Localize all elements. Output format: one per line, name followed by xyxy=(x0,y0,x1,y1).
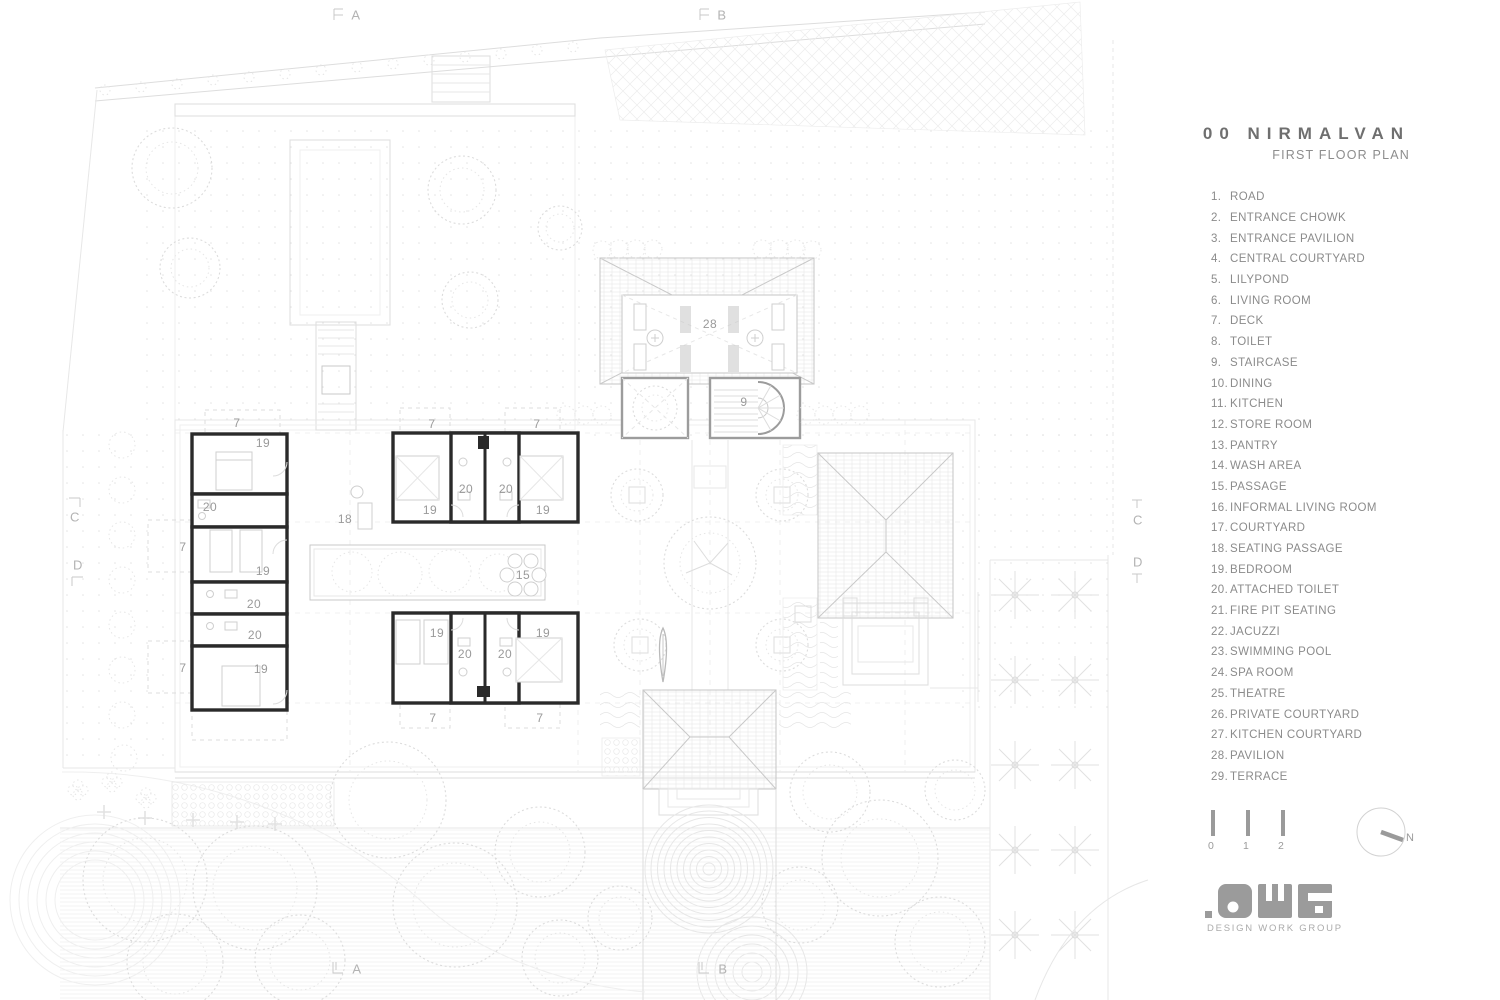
legend-item: 7.DECK xyxy=(1211,311,1377,332)
legend-item-number: 23. xyxy=(1211,646,1230,658)
section-marker-label: C xyxy=(1133,513,1143,528)
logo-caption: DESIGN WORK GROUP xyxy=(1207,923,1343,934)
legend-item-label: TOILET xyxy=(1230,336,1272,348)
legend-item: 12.STORE ROOM xyxy=(1211,415,1377,436)
legend-item: 22.JACUZZI xyxy=(1211,621,1377,642)
legend-item-label: ATTACHED TOILET xyxy=(1230,584,1339,596)
legend-item-label: KITCHEN xyxy=(1230,398,1283,410)
central-courtyard xyxy=(611,440,808,690)
section-marker-label: D xyxy=(1133,555,1143,570)
legend-item-number: 19. xyxy=(1211,564,1230,576)
ornamental-paving xyxy=(68,772,334,831)
room-number-label: 7 xyxy=(536,711,543,725)
legend-item: 13.PANTRY xyxy=(1211,435,1377,456)
legend-item-label: SPA ROOM xyxy=(1230,667,1294,679)
legend-item: 18.SEATING PASSAGE xyxy=(1211,539,1377,560)
legend-item-number: 16. xyxy=(1211,502,1230,514)
legend-item-label: INFORMAL LIVING ROOM xyxy=(1230,502,1377,514)
section-marker-label: B xyxy=(717,8,726,23)
lawn-stripe-texture xyxy=(60,828,990,1000)
legend-item-label: SEATING PASSAGE xyxy=(1230,543,1343,555)
scale-tick-label: 2 xyxy=(1278,840,1284,852)
legend-item: 9.STAIRCASE xyxy=(1211,353,1377,374)
legend-item-label: ENTRANCE CHOWK xyxy=(1230,212,1346,224)
section-marker-label: D xyxy=(73,558,83,573)
legend-item: 1.ROAD xyxy=(1211,187,1377,208)
room-number-label: 19 xyxy=(536,626,550,640)
legend-item-label: PASSAGE xyxy=(1230,481,1287,493)
legend-item-label: ENTRANCE PAVILION xyxy=(1230,233,1355,245)
legend-item: 15.PASSAGE xyxy=(1211,477,1377,498)
legend-item-label: SWIMMING POOL xyxy=(1230,646,1332,658)
room-number-label: 20 xyxy=(247,597,261,611)
room-number-label: 20 xyxy=(499,482,513,496)
drawing-title: 00 NIRMALVAN xyxy=(1203,124,1410,144)
legend-item: 14.WASH AREA xyxy=(1211,456,1377,477)
legend-item: 11.KITCHEN xyxy=(1211,394,1377,415)
legend-item: 5.LILYPOND xyxy=(1211,270,1377,291)
legend-item-label: LIVING ROOM xyxy=(1230,295,1311,307)
legend-item-label: CENTRAL COURTYARD xyxy=(1230,253,1365,265)
legend-item-number: 4. xyxy=(1211,253,1230,265)
north-arrow-icon xyxy=(1354,805,1414,865)
legend-item-number: 13. xyxy=(1211,440,1230,452)
section-marker-label: A xyxy=(351,8,360,23)
scale-tick: 2 xyxy=(1281,810,1311,836)
legend-item-number: 17. xyxy=(1211,522,1230,534)
section-marker-label: B xyxy=(718,962,727,977)
scale-tick: 0 xyxy=(1211,810,1241,836)
legend-item: 28.PAVILION xyxy=(1211,746,1377,767)
legend-item-number: 14. xyxy=(1211,460,1230,472)
legend-item-number: 11. xyxy=(1211,398,1230,410)
legend-item: 25.THEATRE xyxy=(1211,684,1377,705)
legend-item-number: 8. xyxy=(1211,336,1230,348)
legend-item-label: ROAD xyxy=(1230,191,1265,203)
legend-item-label: DECK xyxy=(1230,315,1264,327)
staircase xyxy=(710,378,800,438)
legend-item-label: TERRACE xyxy=(1230,771,1288,783)
room-number-label: 20 xyxy=(498,647,512,661)
room-number-label: 19 xyxy=(256,564,270,578)
legend-item-number: 6. xyxy=(1211,295,1230,307)
legend-item-label: STORE ROOM xyxy=(1230,419,1312,431)
room-number-label: 15 xyxy=(516,568,530,582)
legend-item-number: 3. xyxy=(1211,233,1230,245)
legend-item-number: 20. xyxy=(1211,584,1230,596)
room-number-label: 9 xyxy=(740,395,747,409)
room-number-label: 19 xyxy=(423,503,437,517)
legend-item-label: DINING xyxy=(1230,378,1273,390)
legend-item-number: 29. xyxy=(1211,771,1230,783)
legend-item-number: 15. xyxy=(1211,481,1230,493)
room-number-label: 7 xyxy=(179,540,186,554)
scale-tick: 1 xyxy=(1246,810,1276,836)
room-number-label: 7 xyxy=(233,416,240,430)
legend-item: 17.COURTYARD xyxy=(1211,518,1377,539)
legend-item-number: 28. xyxy=(1211,750,1230,762)
room-number-label: 20 xyxy=(248,628,262,642)
bedroom-cluster-mid-bottom xyxy=(393,613,578,728)
legend-item: 27.KITCHEN COURTYARD xyxy=(1211,725,1377,746)
legend-item: 29.TERRACE xyxy=(1211,766,1377,787)
room-number-label: 19 xyxy=(256,436,270,450)
legend-item-number: 18. xyxy=(1211,543,1230,555)
legend-item-number: 10. xyxy=(1211,378,1230,390)
legend-item-label: BEDROOM xyxy=(1230,564,1292,576)
legend-item-number: 27. xyxy=(1211,729,1230,741)
room-number-label: 19 xyxy=(536,503,550,517)
living-room-roof xyxy=(818,453,978,702)
room-number-label: 7 xyxy=(533,417,540,431)
legend-item-number: 5. xyxy=(1211,274,1230,286)
legend-item: 8.TOILET xyxy=(1211,332,1377,353)
legend-item: 26.PRIVATE COURTYARD xyxy=(1211,704,1377,725)
legend-item-number: 9. xyxy=(1211,357,1230,369)
room-legend: 1.ROAD2.ENTRANCE CHOWK3.ENTRANCE PAVILIO… xyxy=(1211,187,1377,787)
legend-item-number: 2. xyxy=(1211,212,1230,224)
stair-courtyard xyxy=(622,378,688,438)
floor-plan-sheet: 2891815719207192020719772020191919192020… xyxy=(0,0,1500,1000)
room-number-label: 7 xyxy=(428,417,435,431)
legend-item-label: PRIVATE COURTYARD xyxy=(1230,709,1359,721)
legend-item-label: FIRE PIT SEATING xyxy=(1230,605,1336,617)
road-hedge xyxy=(100,42,578,95)
legend-item-label: PANTRY xyxy=(1230,440,1278,452)
room-number-label: 20 xyxy=(459,482,473,496)
scale-tick-label: 0 xyxy=(1208,840,1214,852)
legend-item-number: 22. xyxy=(1211,626,1230,638)
legend-item-number: 1. xyxy=(1211,191,1230,203)
legend-item-number: 12. xyxy=(1211,419,1230,431)
title-panel: 00 NIRMALVAN FIRST FLOOR PLAN 1.ROAD2.EN… xyxy=(1150,0,1500,1000)
section-marker-label: C xyxy=(70,510,80,525)
legend-item-label: PAVILION xyxy=(1230,750,1285,762)
legend-item-number: 21. xyxy=(1211,605,1230,617)
legend-item: 20.ATTACHED TOILET xyxy=(1211,580,1377,601)
legend-item-label: JACUZZI xyxy=(1230,626,1280,638)
legend-item: 23.SWIMMING POOL xyxy=(1211,642,1377,663)
drawing-subtitle: FIRST FLOOR PLAN xyxy=(1272,148,1410,162)
room-number-label: 7 xyxy=(179,661,186,675)
room-number-label: 19 xyxy=(430,626,444,640)
room-number-label: 20 xyxy=(458,647,472,661)
entrance-pavilion xyxy=(600,690,851,815)
legend-item: 24.SPA ROOM xyxy=(1211,663,1377,684)
room-number-label: 28 xyxy=(703,317,717,331)
legend-item: 10.DINING xyxy=(1211,373,1377,394)
legend-item: 3.ENTRANCE PAVILION xyxy=(1211,228,1377,249)
legend-item: 16.INFORMAL LIVING ROOM xyxy=(1211,497,1377,518)
legend-item-number: 25. xyxy=(1211,688,1230,700)
legend-item-number: 24. xyxy=(1211,667,1230,679)
north-label: N xyxy=(1406,832,1414,844)
legend-item-label: COURTYARD xyxy=(1230,522,1305,534)
room-number-label: 20 xyxy=(203,500,217,514)
legend-item-label: STAIRCASE xyxy=(1230,357,1298,369)
scale-bar: 012 xyxy=(1211,810,1331,860)
room-number-label: 18 xyxy=(338,512,352,526)
room-number-label: 7 xyxy=(429,711,436,725)
legend-item: 19.BEDROOM xyxy=(1211,559,1377,580)
legend-item: 4.CENTRAL COURTYARD xyxy=(1211,249,1377,270)
legend-item: 2.ENTRANCE CHOWK xyxy=(1211,208,1377,229)
room-number-label: 19 xyxy=(254,662,268,676)
section-marker-label: A xyxy=(352,962,361,977)
legend-item-label: THEATRE xyxy=(1230,688,1286,700)
legend-item: 21.FIRE PIT SEATING xyxy=(1211,601,1377,622)
legend-item-label: WASH AREA xyxy=(1230,460,1302,472)
legend-item: 6.LIVING ROOM xyxy=(1211,290,1377,311)
legend-item-number: 7. xyxy=(1211,315,1230,327)
dwg-logo-icon xyxy=(1205,884,1345,924)
legend-item-number: 26. xyxy=(1211,709,1230,721)
legend-item-label: KITCHEN COURTYARD xyxy=(1230,729,1362,741)
seating-passage xyxy=(351,486,372,529)
scale-tick-label: 1 xyxy=(1243,840,1249,852)
legend-item-label: LILYPOND xyxy=(1230,274,1289,286)
